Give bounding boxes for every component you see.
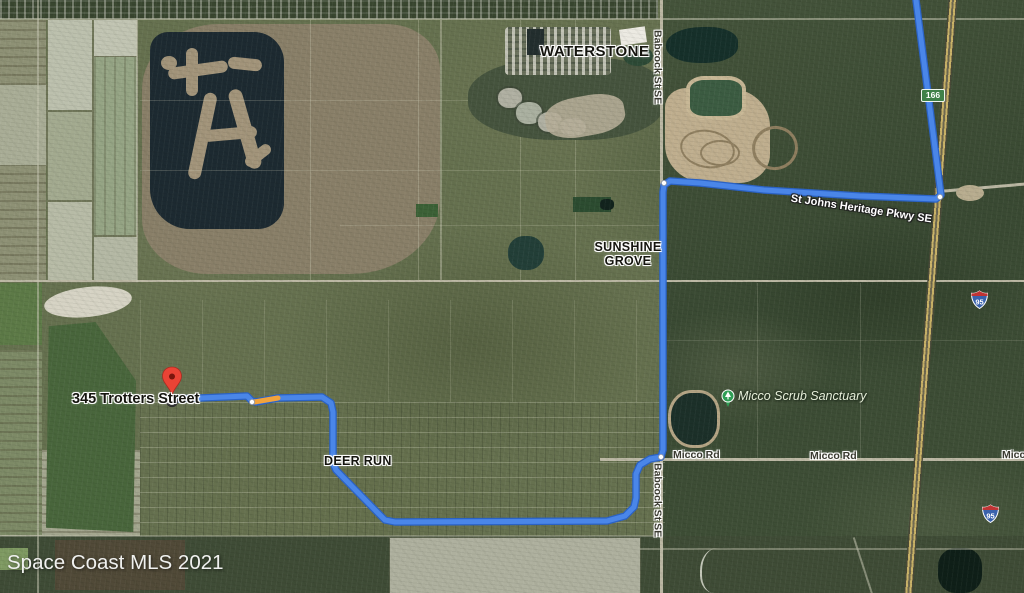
satellite-map: 95 95 166 WATERSTONE SUNSHINE GROVE DEER… [0,0,1024,593]
label-grove: GROVE [585,255,671,269]
label-micco-rd-west: Micco Rd [673,450,720,462]
route-waypoint-dots [249,180,942,459]
exit-166-badge: 166 [921,89,945,102]
label-deer-run: DEER RUN [324,455,392,469]
park-pin [722,390,734,407]
label-destination-address: 345 Trotters Street [72,392,199,408]
destination-pin-dot [169,374,175,380]
i95-shield-north-label: 95 [975,298,983,307]
label-babcock-st-north: Babcock St SE [651,30,663,104]
label-waterstone: WATERSTONE [540,44,649,61]
label-micco-scrub-sanctuary: Micco Scrub Sanctuary [738,390,867,404]
route-overlay: 95 95 [0,0,1024,593]
route-polyline [177,0,941,522]
i95-shield-south-label: 95 [986,512,994,521]
label-sunshine-grove: SUNSHINE GROVE [585,241,671,269]
watermark-space-coast-mls: Space Coast MLS 2021 [7,552,224,575]
route-casing [177,0,941,522]
label-micco-rd-edge: Micco [1002,450,1024,462]
i95-shield-south: 95 [983,505,999,523]
label-micco-rd-east: Micco Rd [810,451,857,463]
label-sunshine: SUNSHINE [585,241,671,255]
exit-166-label: 166 [926,90,940,100]
label-babcock-st-south: Babcock St SE [651,463,663,537]
i95-shield-north: 95 [972,291,988,309]
